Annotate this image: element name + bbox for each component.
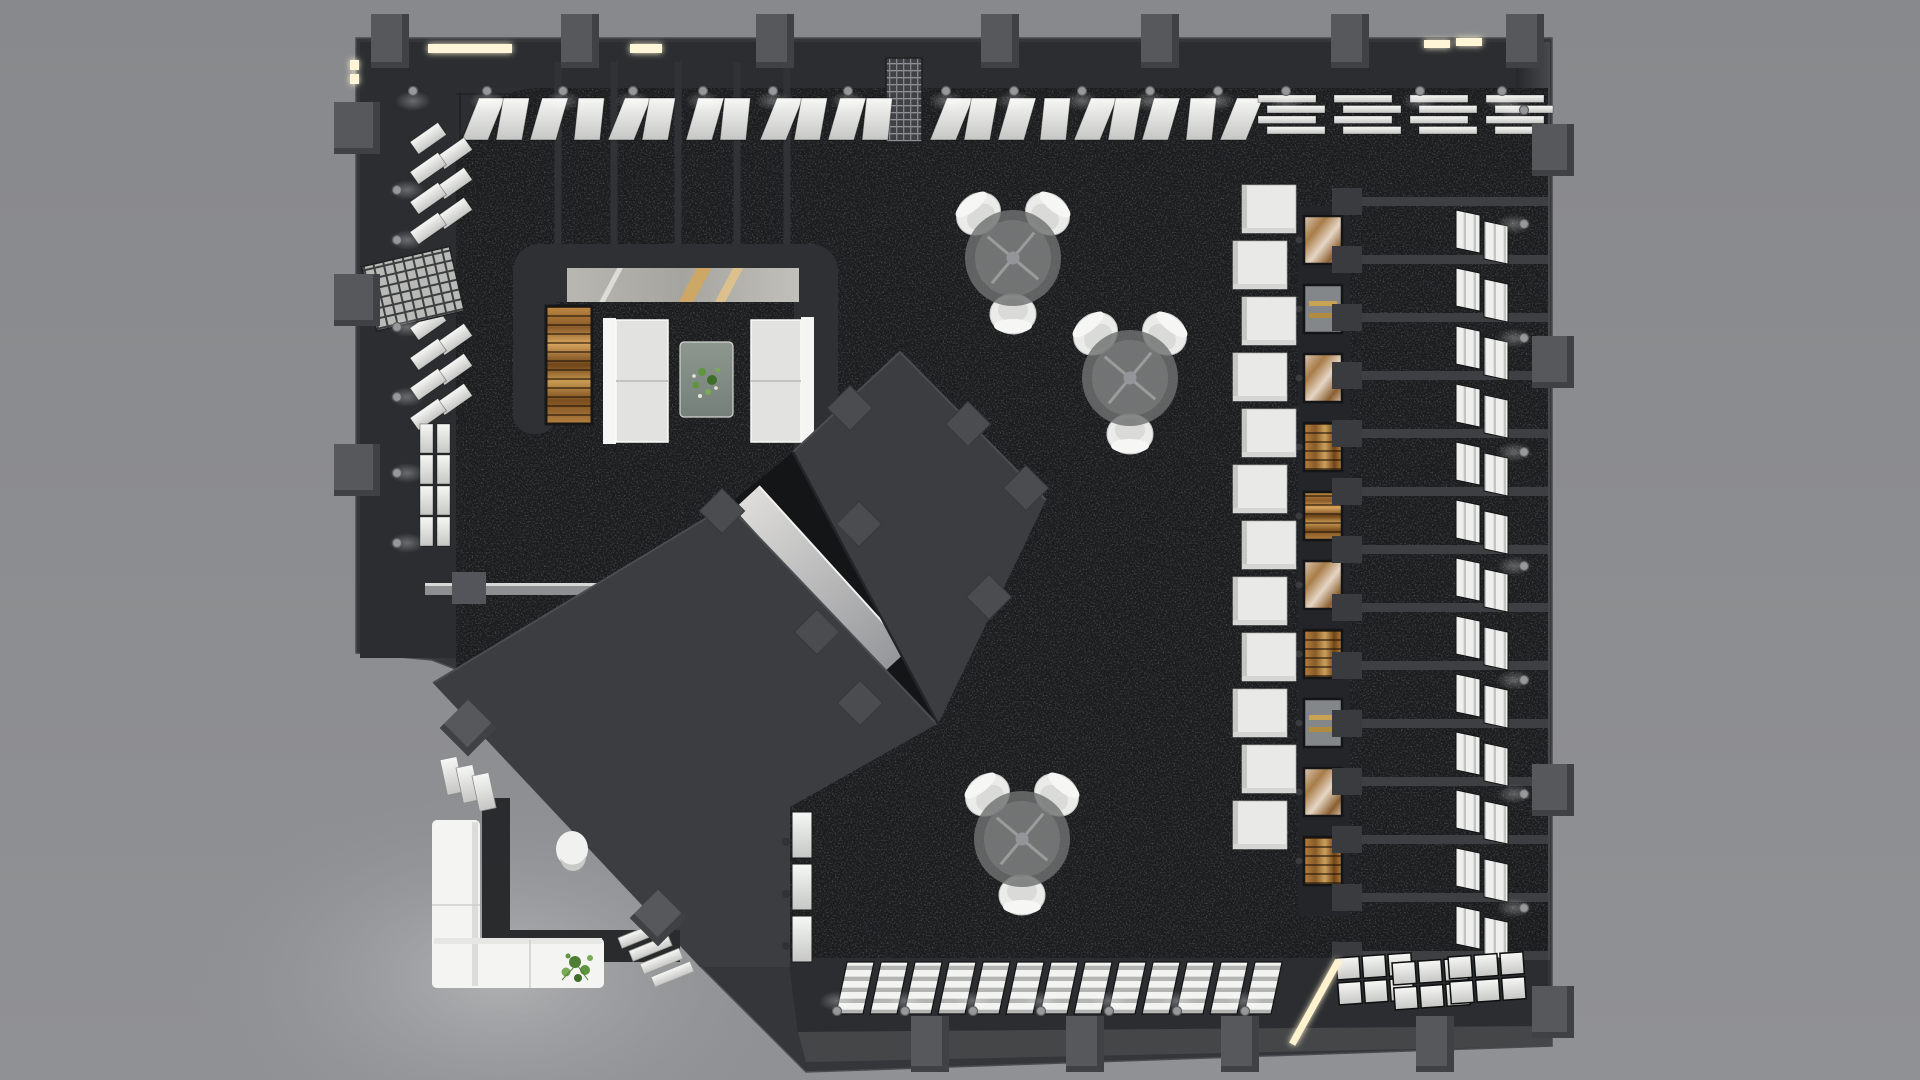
spotlight [844, 87, 853, 96]
spotlight [393, 469, 402, 478]
spotlight [559, 87, 568, 96]
spotlight [901, 1007, 910, 1016]
shelf-box [1242, 409, 1296, 457]
shelf-box [1233, 353, 1287, 401]
rail-end-cap [1332, 304, 1362, 331]
panel-spotlight [1295, 581, 1303, 589]
shelf-box [1242, 633, 1296, 681]
spotlight [1078, 87, 1087, 96]
spotlight [1520, 220, 1529, 229]
spotlight [409, 87, 418, 96]
rail-end-cap [1332, 594, 1362, 621]
spotlight [833, 1007, 842, 1016]
rack-rail [1340, 835, 1548, 844]
deck-spotlight [782, 890, 790, 898]
column [1532, 986, 1574, 1038]
spotlight [1173, 1007, 1182, 1016]
column [1532, 764, 1574, 816]
rack-rail [1340, 255, 1548, 264]
render-viewport [0, 0, 1920, 1080]
spotlight [1520, 334, 1529, 343]
rack-rail [1340, 313, 1548, 322]
spotlight [1416, 87, 1425, 96]
column [756, 14, 794, 68]
column [1506, 14, 1544, 68]
column [981, 14, 1019, 68]
deck-spotlight [782, 942, 790, 950]
column [334, 102, 380, 154]
rail-end-cap [1332, 246, 1362, 273]
shelf-box [1233, 689, 1287, 737]
shelf-box [1233, 241, 1287, 289]
rail-end-cap [1332, 536, 1362, 563]
panel-spotlight [1295, 857, 1303, 865]
panel-spotlight [1295, 374, 1303, 382]
spotlight [1010, 87, 1019, 96]
sofa-right [751, 317, 814, 443]
spotlight [769, 87, 778, 96]
spotlight [393, 539, 402, 548]
display-panel [720, 98, 750, 140]
rail-end-cap [1332, 652, 1362, 679]
floor-tile-mats [1336, 952, 1526, 1010]
display-panel [862, 98, 892, 140]
deck-panel [792, 916, 812, 962]
wood-feature-panel [546, 306, 592, 424]
column [911, 1016, 949, 1072]
column [334, 274, 380, 326]
rack-rail [1340, 545, 1548, 554]
rail-end-cap [1332, 188, 1362, 215]
column [371, 14, 409, 68]
spotlight [483, 87, 492, 96]
column [1532, 124, 1574, 176]
spotlight [1282, 87, 1291, 96]
spotlight [393, 323, 402, 332]
shelf-box [1242, 745, 1296, 793]
rail-end-cap [1332, 362, 1362, 389]
rail-end-cap [1332, 710, 1362, 737]
spotlight [1520, 106, 1529, 115]
deck-panel [792, 864, 812, 910]
rail-end-cap [1332, 884, 1362, 911]
spotlight [1241, 1007, 1250, 1016]
spotlight [1214, 87, 1223, 96]
showroom-floorplan-render [0, 0, 1920, 1080]
rail-end-cap [1332, 420, 1362, 447]
spotlight [393, 236, 402, 245]
spotlight [1498, 87, 1507, 96]
spotlight [1520, 676, 1529, 685]
rack-rail [1340, 487, 1548, 496]
column [1221, 1016, 1259, 1072]
shelf-box [1242, 521, 1296, 569]
left-wall-column-block [452, 572, 486, 604]
spotlight [942, 87, 951, 96]
shelf-box [1242, 297, 1296, 345]
spotlight [393, 186, 402, 195]
column [1066, 1016, 1104, 1072]
deck-spotlight [782, 838, 790, 846]
rack-rail [1340, 661, 1548, 670]
spotlight [1520, 904, 1529, 913]
rail-end-cap [1332, 478, 1362, 505]
rack-rail [1340, 603, 1548, 612]
panel-spotlight [1295, 236, 1303, 244]
column [1141, 14, 1179, 68]
spotlight [969, 1007, 978, 1016]
panel-spotlight [1295, 512, 1303, 520]
column [1416, 1016, 1454, 1072]
spotlight [1520, 562, 1529, 571]
spotlight [393, 393, 402, 402]
coffee-table [680, 342, 733, 417]
rack-rail [1340, 371, 1548, 380]
shelf-box [1233, 801, 1287, 849]
spotlight [1037, 1007, 1046, 1016]
column [1532, 336, 1574, 388]
column [334, 444, 380, 496]
shelf-box [1242, 185, 1296, 233]
deck-panel [792, 812, 812, 858]
column [561, 14, 599, 68]
spotlight [1520, 448, 1529, 457]
spotlight [1105, 1007, 1114, 1016]
column [1331, 14, 1369, 68]
spotlight [699, 87, 708, 96]
shelf-box [1233, 577, 1287, 625]
shelf-box [1233, 465, 1287, 513]
panel-spotlight [1295, 719, 1303, 727]
spotlight [629, 87, 638, 96]
spotlight [1146, 87, 1155, 96]
rack-rail [1340, 197, 1548, 206]
rack-rail [1340, 429, 1548, 438]
spotlight [1520, 790, 1529, 799]
rail-end-cap [1332, 826, 1362, 853]
sofa-left [603, 318, 668, 444]
rail-end-cap [1332, 768, 1362, 795]
rack-rail [1340, 719, 1548, 728]
